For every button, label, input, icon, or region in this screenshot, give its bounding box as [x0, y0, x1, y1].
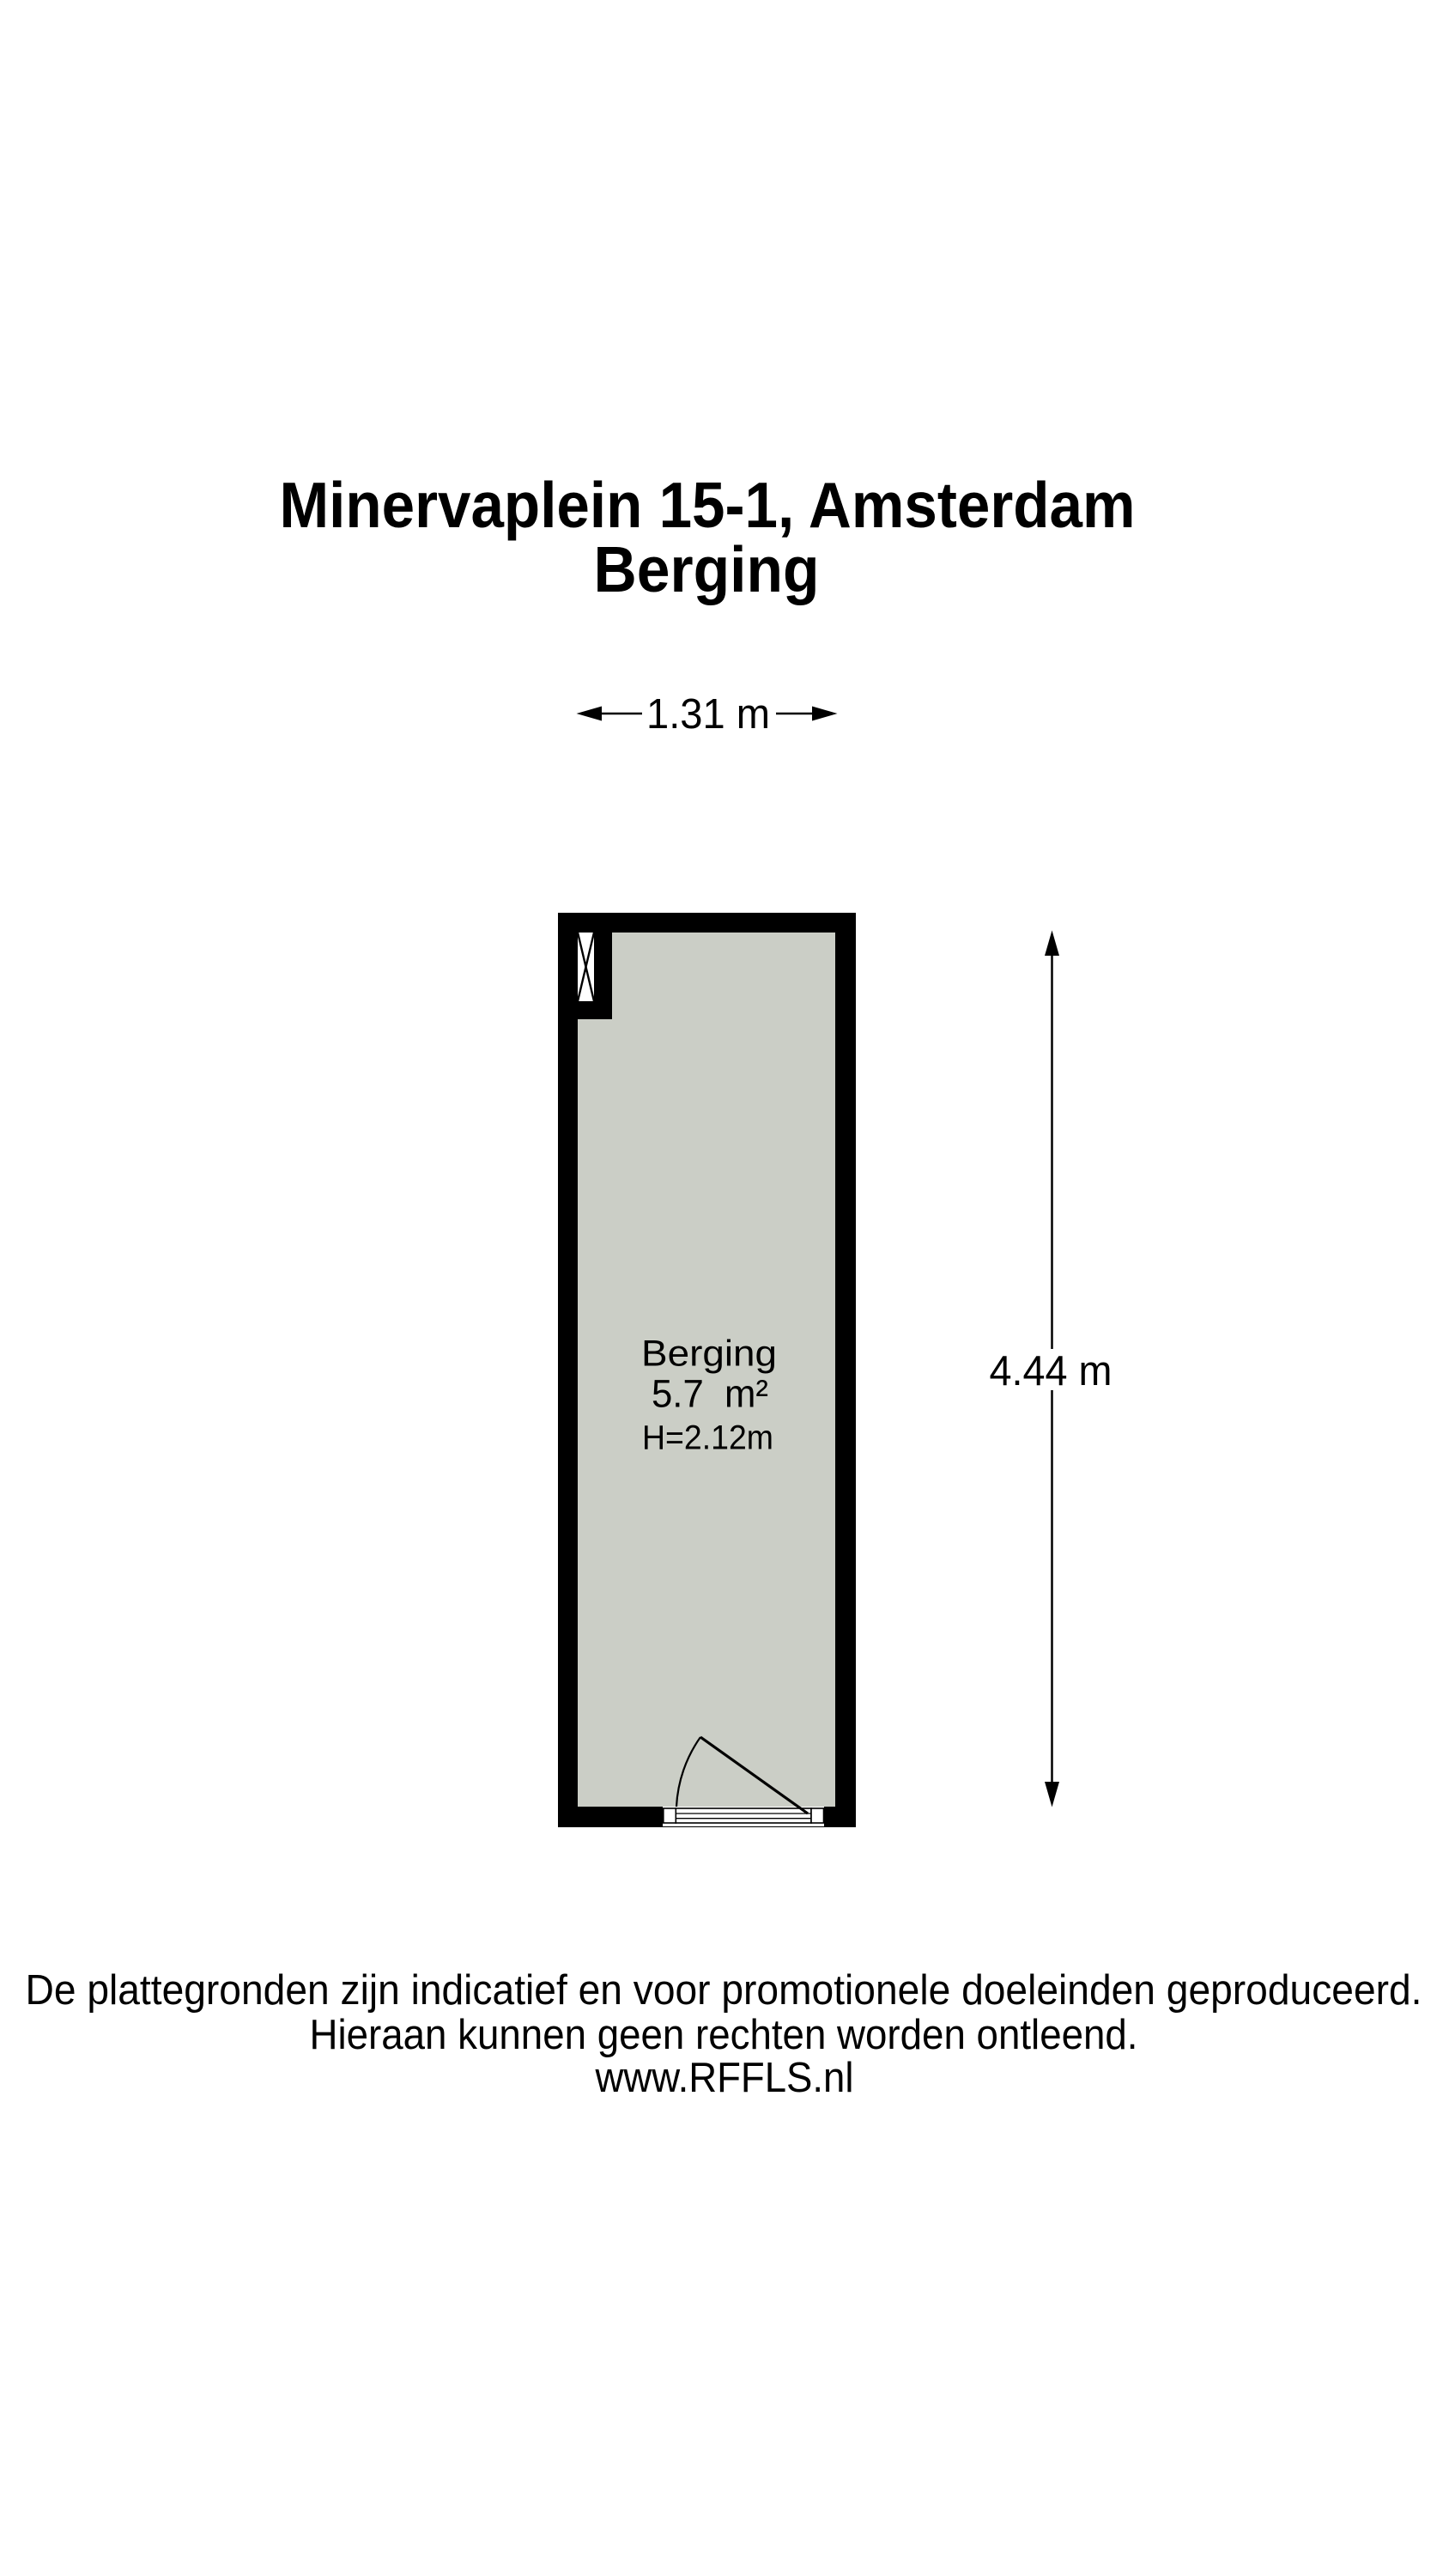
svg-text:Berging: Berging	[641, 1334, 777, 1375]
svg-text:Hieraan kunnen geen rechten wo: Hieraan kunnen geen rechten worden ontle…	[310, 2012, 1138, 2058]
svg-text:4.44 m: 4.44 m	[990, 1348, 1113, 1394]
svg-text:Minervaplein 15-1, Amsterdam: Minervaplein 15-1, Amsterdam	[280, 469, 1136, 541]
svg-text:Berging: Berging	[594, 533, 820, 605]
svg-text:De plattegronden zijn indicati: De plattegronden zijn indicatief en voor…	[26, 1967, 1422, 2014]
svg-text:H=2.12m: H=2.12m	[642, 1419, 773, 1457]
svg-text:www.RFFLS.nl: www.RFFLS.nl	[595, 2055, 854, 2101]
svg-text:5.7 m²: 5.7 m²	[652, 1372, 768, 1416]
svg-text:1.31 m: 1.31 m	[646, 691, 770, 738]
